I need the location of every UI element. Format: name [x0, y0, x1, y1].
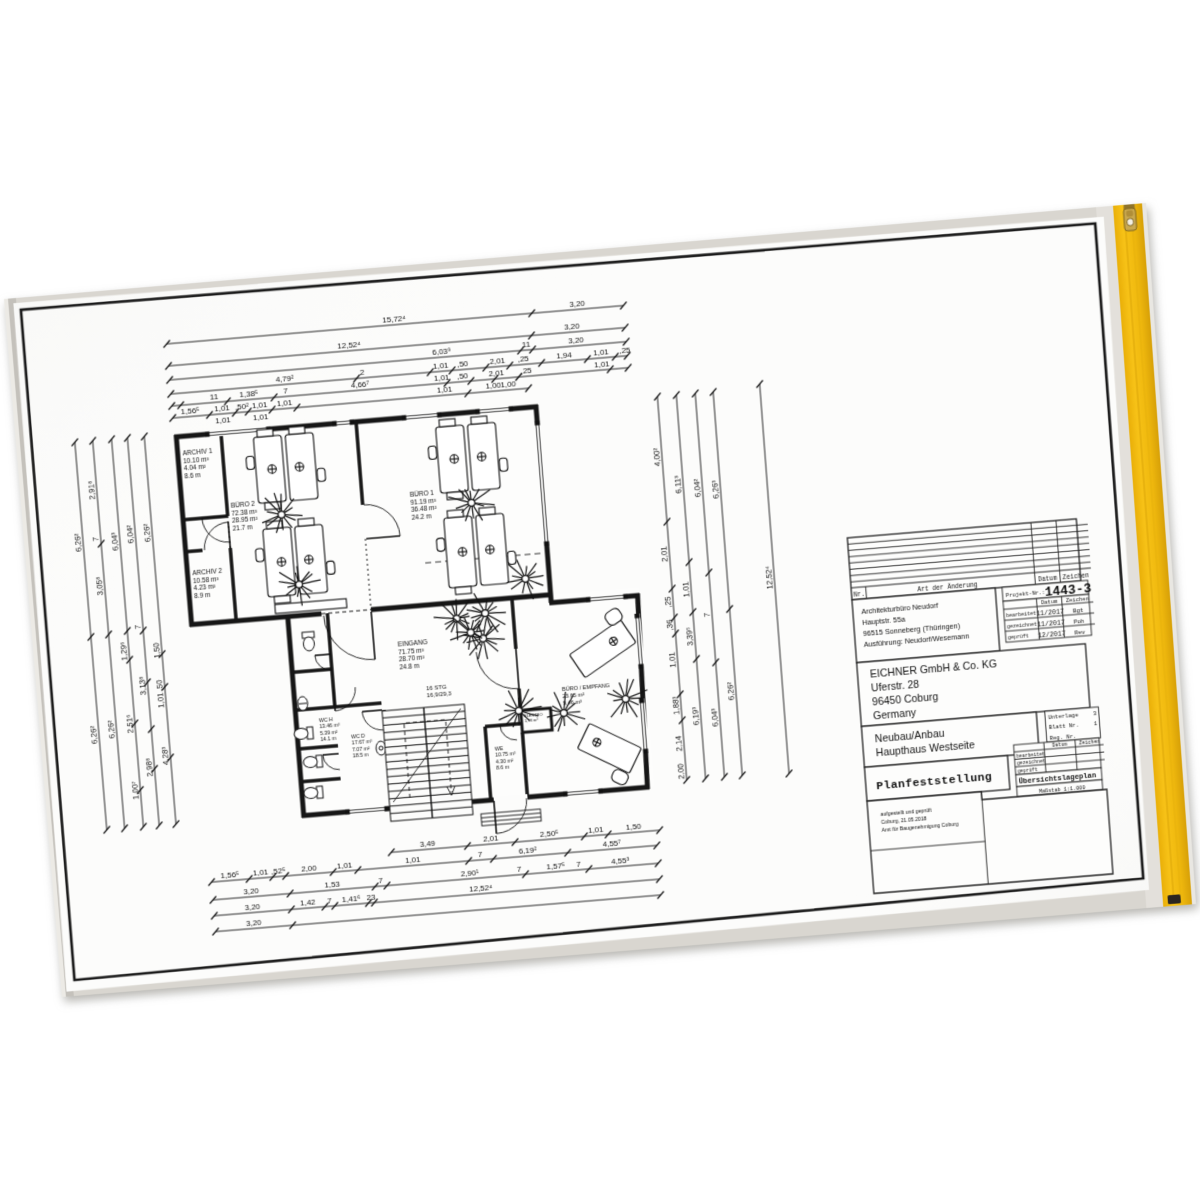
svg-text:3,20: 3,20 — [246, 918, 263, 928]
svg-text:11: 11 — [210, 393, 220, 403]
svg-text:2,00: 2,00 — [676, 763, 686, 780]
svg-text:6,04³: 6,04³ — [110, 532, 120, 551]
svg-text:2,00: 2,00 — [301, 864, 318, 874]
svg-text:1,01: 1,01 — [434, 373, 451, 383]
svg-text:1,94: 1,94 — [556, 351, 573, 361]
svg-text:1,01: 1,01 — [156, 692, 166, 709]
svg-text:6,04³: 6,04³ — [710, 708, 720, 727]
svg-text:3,20: 3,20 — [569, 299, 586, 309]
svg-text:2,01: 2,01 — [489, 356, 506, 366]
svg-text:,36: ,36 — [665, 619, 675, 631]
svg-text:1,01: 1,01 — [681, 581, 691, 598]
svg-text:1,38⁵: 1,38⁵ — [239, 389, 258, 400]
svg-text:3,05⁸: 3,05⁸ — [94, 576, 104, 596]
svg-text:2,91⁸: 2,91⁸ — [87, 480, 97, 500]
svg-text:1,01: 1,01 — [594, 360, 611, 370]
svg-text:3,20: 3,20 — [564, 322, 581, 332]
svg-text:Datum: Datum — [1041, 598, 1059, 606]
svg-text:4,28³: 4,28³ — [160, 746, 170, 765]
svg-text:3,20: 3,20 — [244, 903, 261, 913]
svg-text:1,29⁶: 1,29⁶ — [119, 641, 129, 661]
svg-text:Rev: Rev — [1074, 629, 1086, 637]
svg-text:1,56⁵: 1,56⁵ — [220, 870, 239, 880]
svg-text:6,26²: 6,26² — [73, 533, 83, 552]
svg-text:4,66⁷: 4,66⁷ — [351, 380, 370, 391]
svg-text:3,39⁵: 3,39⁵ — [685, 627, 695, 647]
svg-text:1,01: 1,01 — [593, 348, 610, 358]
svg-text:1,50: 1,50 — [625, 822, 642, 832]
svg-text:1,00: 1,00 — [485, 381, 502, 391]
svg-text:,50²: ,50² — [235, 402, 250, 412]
svg-text:1,42: 1,42 — [300, 898, 317, 908]
svg-text:4,00²: 4,00² — [652, 447, 662, 466]
svg-text:1,50: 1,50 — [152, 642, 162, 659]
svg-text:1,01: 1,01 — [215, 415, 232, 425]
svg-text:,25: ,25 — [663, 596, 673, 608]
svg-text:23: 23 — [366, 893, 376, 903]
svg-text:3,13⁸: 3,13⁸ — [138, 676, 148, 696]
svg-text:2,14: 2,14 — [674, 735, 684, 752]
svg-text:3,20: 3,20 — [568, 336, 585, 346]
svg-text:6,26²: 6,26² — [106, 720, 116, 739]
svg-text:3,20: 3,20 — [243, 887, 260, 897]
svg-text:Bgt: Bgt — [1073, 607, 1084, 615]
svg-text:1,56⁵: 1,56⁵ — [180, 406, 199, 417]
svg-text:6,26³: 6,26³ — [710, 480, 720, 499]
svg-text:1,01: 1,01 — [253, 868, 270, 878]
svg-text:1,88³: 1,88³ — [671, 696, 681, 715]
svg-text:2,50⁵: 2,50⁵ — [540, 829, 559, 839]
svg-text:1,41⁶: 1,41⁶ — [342, 894, 361, 904]
svg-text:,50: ,50 — [155, 679, 165, 691]
svg-text:2,01: 2,01 — [483, 834, 500, 844]
svg-text:Datum: Datum — [1052, 742, 1067, 749]
svg-text:1,01: 1,01 — [253, 412, 270, 422]
svg-text:,25: ,25 — [520, 366, 532, 376]
svg-text:1,01: 1,01 — [276, 398, 293, 408]
svg-text:Poh: Poh — [1073, 618, 1085, 626]
svg-text:2,98⁸: 2,98⁸ — [144, 758, 154, 778]
svg-text:11: 11 — [522, 340, 531, 350]
svg-text:1,01: 1,01 — [433, 361, 450, 371]
svg-text:2,90¹: 2,90¹ — [460, 869, 479, 879]
svg-text:2,51⁶: 2,51⁶ — [125, 714, 135, 733]
svg-text:,52⁵: ,52⁵ — [271, 867, 286, 877]
svg-text:4,55⁷: 4,55⁷ — [602, 839, 621, 849]
svg-text:6,19²: 6,19² — [518, 846, 537, 856]
svg-text:4,79²: 4,79² — [275, 374, 294, 385]
svg-text:1,01: 1,01 — [405, 855, 422, 865]
svg-text:6,26²: 6,26² — [726, 681, 736, 700]
svg-text:Nr.: Nr. — [853, 591, 865, 599]
svg-text:1,01: 1,01 — [252, 401, 269, 411]
svg-text:1,57⁵: 1,57⁵ — [546, 861, 565, 871]
svg-text:12,52⁴: 12,52⁴ — [764, 565, 775, 590]
svg-text:6,26²: 6,26² — [89, 725, 99, 744]
svg-text:1,01: 1,01 — [588, 825, 605, 835]
svg-text:1,53: 1,53 — [324, 880, 341, 890]
svg-text:1,01: 1,01 — [337, 861, 354, 871]
svg-text:6,11³: 6,11³ — [673, 475, 683, 494]
svg-text:1,01: 1,01 — [436, 385, 453, 395]
svg-text:6,04²: 6,04² — [692, 478, 702, 497]
svg-text:4,55³: 4,55³ — [611, 856, 630, 866]
svg-text:1,00⁷: 1,00⁷ — [130, 781, 140, 800]
svg-text:6,26²: 6,26² — [142, 523, 152, 542]
svg-text:,50: ,50 — [457, 359, 469, 369]
svg-text:6,03⁹: 6,03⁹ — [432, 347, 452, 358]
svg-text:6,19³: 6,19³ — [691, 706, 701, 725]
svg-text:,50: ,50 — [457, 372, 469, 382]
svg-text:6,04²: 6,04² — [125, 524, 135, 543]
svg-text:1,01: 1,01 — [214, 404, 231, 414]
svg-text:2,01: 2,01 — [659, 545, 669, 562]
svg-text:,25: ,25 — [517, 354, 529, 364]
svg-text:3,49: 3,49 — [419, 839, 436, 849]
svg-text:1,00: 1,00 — [500, 379, 517, 389]
svg-text:1,01: 1,01 — [667, 651, 677, 668]
svg-text:2,01: 2,01 — [488, 369, 505, 379]
svg-text:,25: ,25 — [619, 346, 631, 356]
